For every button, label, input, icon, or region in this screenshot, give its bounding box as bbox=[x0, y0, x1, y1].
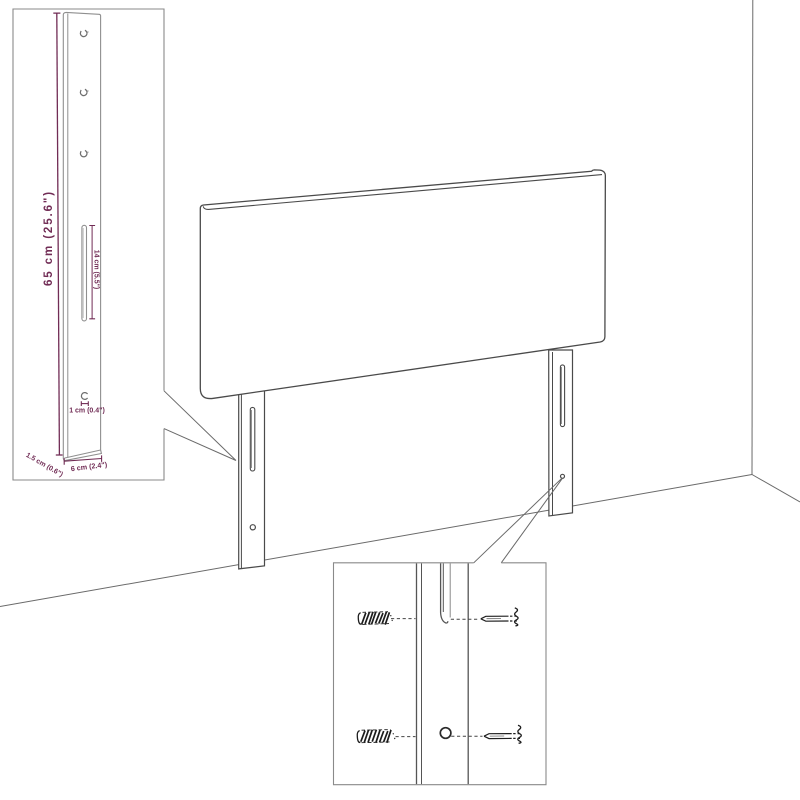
svg-text:65 cm (25.6"): 65 cm (25.6") bbox=[43, 190, 55, 286]
svg-text:1 cm (0.4"): 1 cm (0.4") bbox=[69, 408, 105, 415]
svg-text:14 cm (5.5"): 14 cm (5.5") bbox=[93, 250, 100, 290]
